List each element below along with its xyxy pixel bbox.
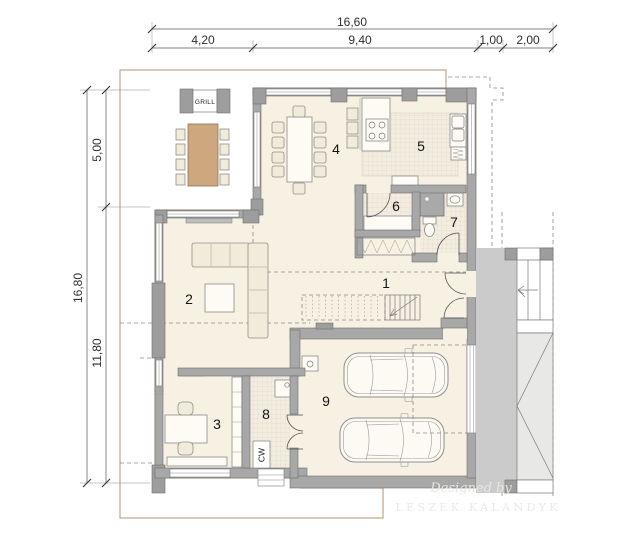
outdoor-dining-table — [176, 124, 229, 186]
dim-top-segment-0: 4,20 — [191, 33, 215, 47]
garage-door — [467, 345, 476, 433]
entrance-door-gap — [466, 271, 477, 297]
dim-top-segment-3: 2,00 — [516, 33, 540, 47]
tv-cabinet — [186, 218, 232, 223]
grill-station: GRILL — [180, 89, 230, 113]
coffee-table — [205, 284, 234, 312]
car-1 — [344, 349, 448, 402]
dim-left-segment-1: 11,80 — [90, 338, 104, 367]
kitchen-sink-unit — [450, 114, 466, 147]
room-label-5: 5 — [417, 138, 425, 154]
room-label-3: 3 — [213, 416, 221, 432]
room-label-6: 6 — [392, 198, 400, 214]
office-shelf-bottom — [167, 457, 227, 466]
room6-cabinet — [364, 216, 412, 231]
watermark-line1: Designed by — [429, 481, 512, 496]
top-dimension-lines: 16,60 4,20 9,40 1,00 2,00 — [148, 15, 557, 53]
shower — [420, 192, 444, 216]
room-label-4: 4 — [332, 141, 340, 157]
washbasin — [447, 193, 463, 206]
room6-fixtures — [364, 216, 412, 231]
room-label-7: 7 — [450, 214, 458, 230]
watermark-line2: LESZEK KALANDYK — [395, 500, 560, 514]
desk-chair-1 — [178, 402, 193, 415]
exterior-right — [476, 248, 553, 493]
desk — [165, 415, 207, 443]
room-label-2: 2 — [185, 291, 193, 307]
sofa-horizontal — [192, 243, 249, 267]
dim-top-segment-1: 9,40 — [348, 33, 372, 47]
room-label-1: 1 — [382, 275, 390, 291]
cw-label: CW — [257, 448, 267, 462]
toilet-bowl — [425, 224, 435, 237]
car-2 — [340, 414, 444, 467]
floor-plan-canvas: 16,60 4,20 9,40 1,00 2,00 16,80 5,00 11,… — [0, 0, 638, 556]
grill-label: GRILL — [195, 99, 215, 106]
toilet-tank — [423, 217, 436, 224]
sofa-vertical — [248, 243, 268, 338]
desk-chair-2 — [178, 442, 193, 455]
room-label-8: 8 — [262, 406, 270, 422]
shower-drain — [425, 197, 429, 201]
left-dimension-lines: 16,80 5,00 11,80 — [71, 86, 150, 487]
dim-top-segment-2: 1,00 — [479, 33, 503, 47]
dim-top-total: 16,60 — [337, 15, 367, 29]
washing-machine — [275, 380, 292, 397]
dim-left-segment-0: 5,00 — [90, 138, 104, 162]
dining-table — [287, 117, 312, 182]
paving — [476, 248, 517, 493]
room-label-9: 9 — [322, 393, 330, 409]
dim-left-total: 16,80 — [71, 273, 85, 303]
floor-plan-svg: 16,60 4,20 9,40 1,00 2,00 16,80 5,00 11,… — [0, 0, 638, 556]
